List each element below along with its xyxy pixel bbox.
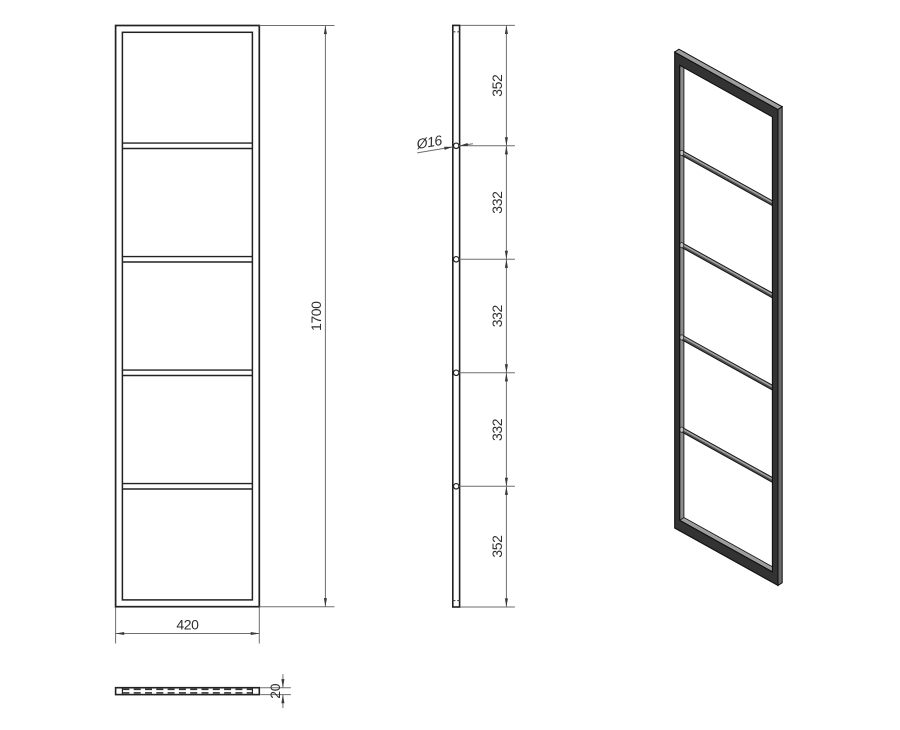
svg-text:20: 20: [267, 683, 283, 698]
svg-text:352: 352: [489, 535, 505, 558]
svg-text:332: 332: [489, 191, 505, 214]
svg-text:352: 352: [489, 74, 505, 97]
svg-text:332: 332: [489, 305, 505, 328]
svg-text:420: 420: [176, 617, 199, 633]
svg-text:1700: 1700: [308, 301, 324, 331]
svg-text:332: 332: [489, 418, 505, 441]
